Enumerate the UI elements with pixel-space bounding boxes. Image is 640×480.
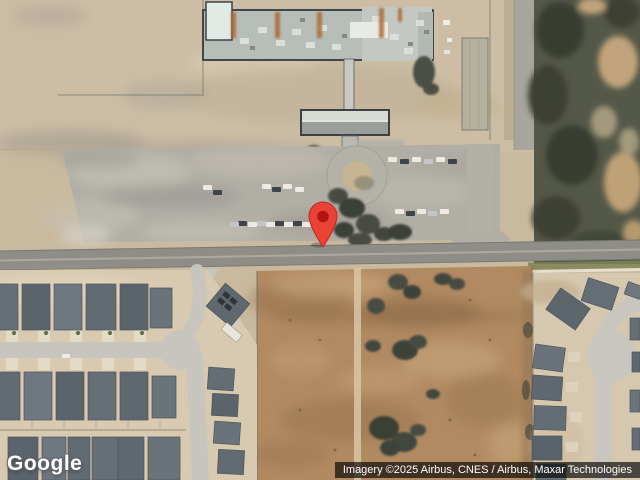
map-viewport[interactable]: Google Imagery ©2025 Airbus, CNES / Airb… xyxy=(0,0,640,480)
open-field xyxy=(208,266,535,480)
school-building xyxy=(202,2,434,61)
attribution-bar: Imagery ©2025 Airbus, CNES / Airbus, Max… xyxy=(335,462,640,478)
attribution-text: Imagery ©2025 Airbus, CNES / Airbus, Max… xyxy=(343,462,632,478)
maps-screenshot: Google Imagery ©2025 Airbus, CNES / Airb… xyxy=(0,0,640,480)
google-logo[interactable]: Google xyxy=(7,452,82,476)
covered-walkway xyxy=(344,59,354,113)
residential-southwest xyxy=(0,270,257,480)
map-pin-icon[interactable] xyxy=(307,201,339,248)
residential-southeast xyxy=(520,273,640,480)
tree-stand-east xyxy=(528,0,640,264)
side-road-north xyxy=(504,0,534,150)
